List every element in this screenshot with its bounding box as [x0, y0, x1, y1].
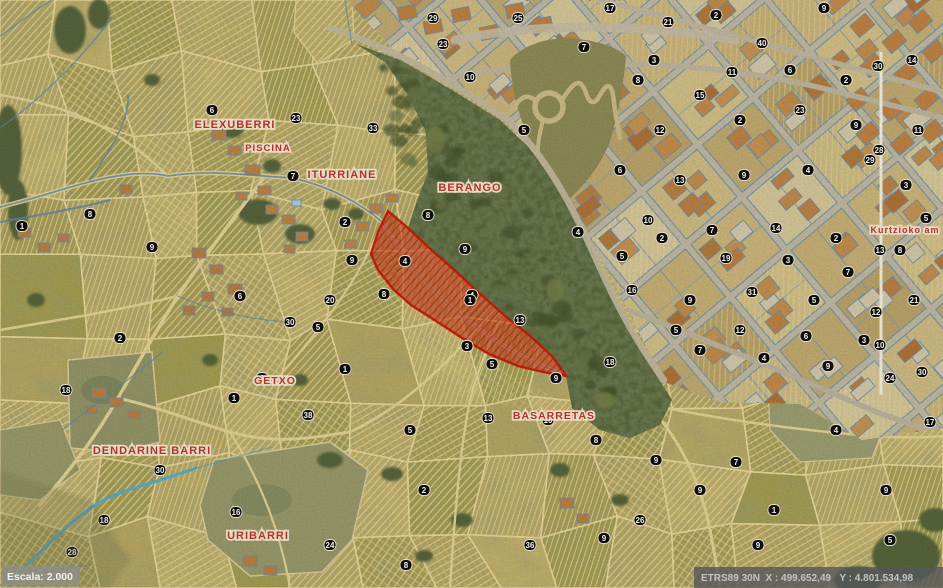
- svg-text:Escala: 2.000: Escala: 2.000: [7, 571, 73, 583]
- svg-text:ETRS89 30N X : 499.652,49 Y: ETRS89 30N X : 499.652,49 Y : 4.801.534,…: [701, 573, 914, 584]
